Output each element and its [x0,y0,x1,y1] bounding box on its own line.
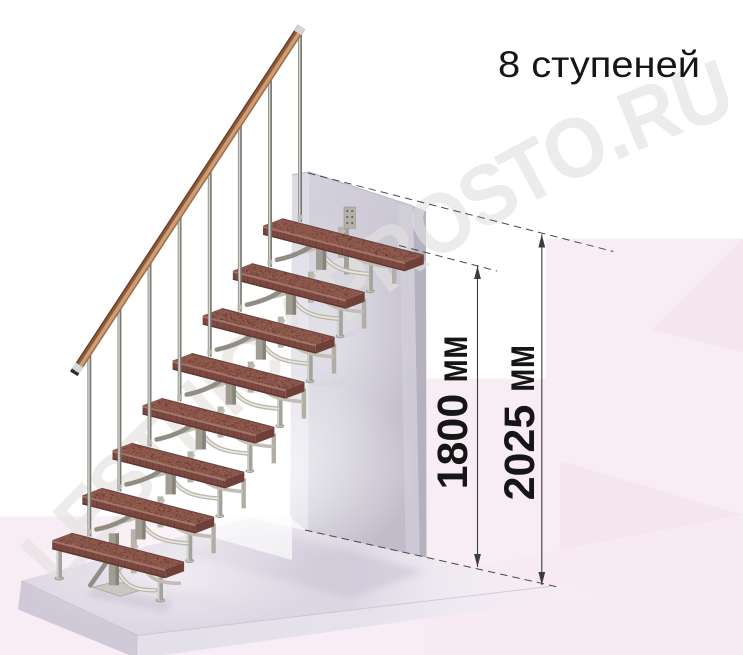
svg-text:1800: 1800 [429,394,477,490]
svg-text:мм: мм [429,335,477,382]
svg-text:мм: мм [496,345,544,392]
svg-text:8 ступеней: 8 ступеней [498,44,700,85]
svg-text:2025: 2025 [496,405,544,501]
